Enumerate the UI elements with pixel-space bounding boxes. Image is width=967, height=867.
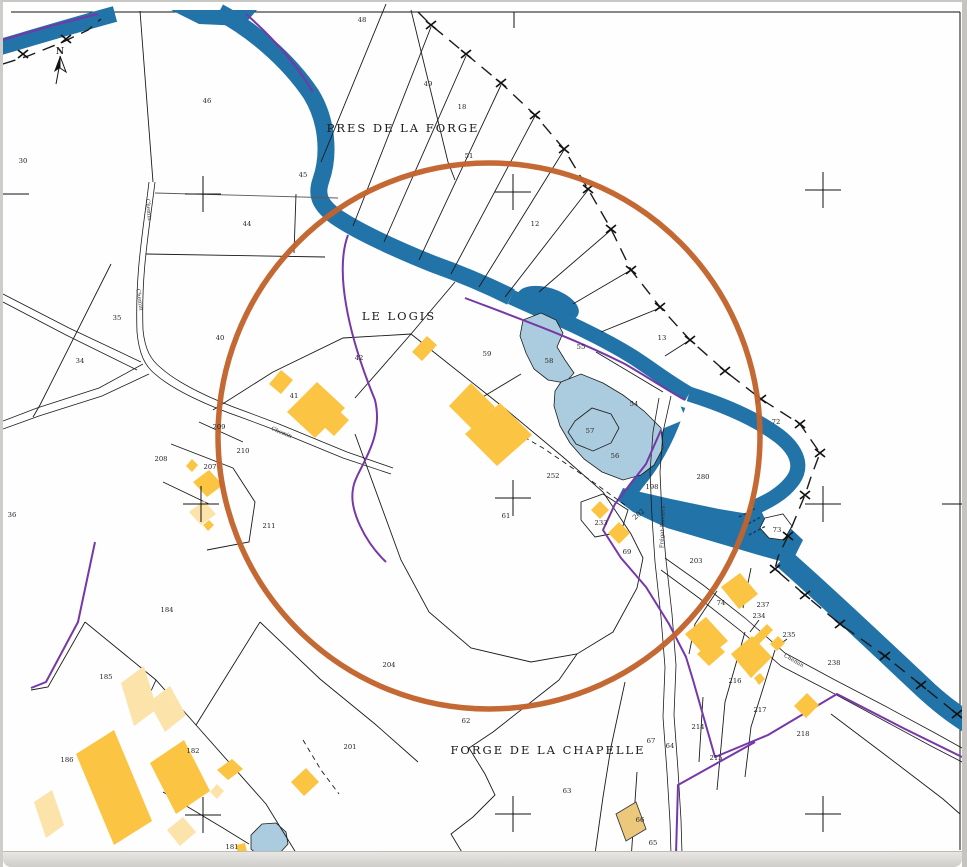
boundary-cross-icon [685,336,695,344]
parcel-label: 59 [483,350,492,358]
parcel-label: 44 [243,220,252,228]
parcel-label: 182 [187,747,200,755]
parcel-label: 64 [666,742,675,750]
north-label: N [56,47,64,57]
grid-cross-icon [495,174,531,210]
cadastral-map[interactable]: N PRES DE LA FORGELE LOGISFORGE DE LA CH… [3,2,962,854]
parcel-label: 36 [8,511,17,519]
parcel-label: 185 [100,673,113,681]
building-shapes [34,336,819,854]
parcel-label: 74 [717,599,726,607]
boundary-cross-icon [655,303,665,311]
parcel-label: 65 [649,839,658,847]
boundary-cross-icon [815,449,825,457]
parcel-label: 280 [697,473,710,481]
parcel-label: 214 [692,723,705,731]
boundary-cross-icon [18,50,28,58]
parcel-label: 61 [502,512,511,520]
parcel-label: 12 [531,220,540,228]
parcel-label: 208 [155,455,168,463]
parcel-label: 30 [19,157,28,165]
parcel-label: 55 [577,343,586,351]
parcel-labels: 3046484918511213454440353436424120921020… [8,16,841,851]
boundary-cross-icon [795,420,805,428]
parcel-label: 73 [773,526,782,534]
road-label: Chemin [144,199,152,222]
grid-cross-icon [805,172,841,208]
boundary-cross-icon [800,491,810,499]
parcel-label: 209 [213,423,226,431]
parcel-label: 67 [647,737,656,745]
parcel-label: 235 [783,631,796,639]
map-canvas: N PRES DE LA FORGELE LOGISFORGE DE LA CH… [3,2,962,854]
parcel-label: 69 [623,548,632,556]
parcel-label: 204 [383,661,396,669]
parcel-label: 46 [203,97,212,105]
road-label: Chemin [134,289,144,312]
parcel-label: 62 [462,717,471,725]
parcel-label: 40 [216,334,225,342]
parcel-label: 201 [344,743,357,751]
grid-cross-icon [185,176,221,212]
parcel-label: 211 [263,522,276,530]
boundary-cross-icon [720,367,730,375]
parcel-label: 216 [729,677,742,685]
place-label: FORGE DE LA CHAPELLE [450,743,645,757]
grid-crosses [183,172,962,833]
parcel-label: 215 [710,754,723,762]
parcel-label: 41 [290,392,299,400]
parcel-label: 35 [113,314,122,322]
parcel-label: 210 [237,447,250,455]
parcel-label: 237 [757,601,770,609]
north-arrow-icon: N [54,47,66,84]
parcel-label: 66 [636,816,645,824]
parcel-label: 218 [797,730,810,738]
parcel-label: 63 [563,787,572,795]
boundary-cross-icon [559,145,569,153]
parcel-label: 13 [658,334,667,342]
parcel-label: 238 [828,659,841,667]
parcel-label: 57 [586,427,595,435]
parcel-label: 181 [226,843,239,851]
parcel-label: 45 [299,171,308,179]
parcel-label: 58 [545,357,554,365]
grid-cross-icon [495,796,531,832]
grid-cross-icon [942,486,962,522]
parcel-label: 252 [547,472,560,480]
parcel-label: 184 [161,606,174,614]
parcel-label: 203 [690,557,703,565]
window-bottom-bar [3,851,962,867]
boundary-cross-icon [606,225,616,233]
road-label: Chemin [783,653,805,669]
parcel-label: 207 [204,463,217,471]
parcel-label: 42 [355,354,364,362]
parcel-label: 217 [754,706,767,714]
parcel-label: 54 [630,400,639,408]
parcel-label: 72 [772,418,781,426]
parcel-label: 18 [458,103,467,111]
grid-cross-icon [805,486,841,522]
river-shape [3,10,962,726]
parcel-label: 56 [611,452,620,460]
map-window: N PRES DE LA FORGELE LOGISFORGE DE LA CH… [0,0,967,867]
parcel-label: 48 [358,16,367,24]
parcel-label: 198 [646,483,659,491]
parcel-label: 34 [76,357,85,365]
boundary-cross-icon [626,266,636,274]
place-label: PRES DE LA FORGE [327,121,480,135]
grid-cross-icon [495,480,531,516]
parcel-label: 49 [424,80,433,88]
parcel-label: 51 [465,152,474,160]
boundary-cross-icon [530,111,540,119]
place-label: LE LOGIS [362,309,436,323]
parcel-label: 234 [753,612,766,620]
parcel-label: 233 [595,519,608,527]
parcel-label: 186 [61,756,74,764]
grid-cross-icon [805,796,841,832]
